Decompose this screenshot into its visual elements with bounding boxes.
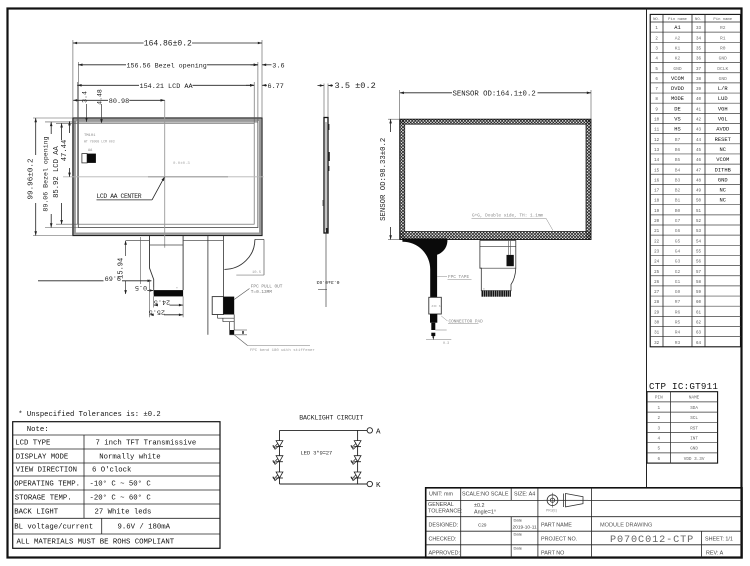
- svg-text:3.5 ±0.2: 3.5 ±0.2: [335, 81, 376, 91]
- svg-text:30: 30: [654, 322, 660, 326]
- svg-text:27: 27: [654, 291, 660, 295]
- svg-text:BL voltage/current: BL voltage/current: [14, 524, 93, 532]
- svg-text:36: 36: [696, 58, 702, 62]
- svg-text:B5: B5: [675, 157, 681, 163]
- svg-text:A2: A2: [675, 35, 681, 41]
- svg-text:Pin name: Pin name: [713, 17, 732, 22]
- svg-text:GENERAL: GENERAL: [428, 502, 454, 508]
- svg-text:3.6: 3.6: [272, 62, 284, 70]
- svg-text:12: 12: [654, 139, 660, 143]
- svg-text:1: 1: [658, 406, 661, 411]
- svg-text:B0: B0: [675, 208, 681, 214]
- svg-text:FPC PULL OUT: FPC PULL OUT: [251, 284, 283, 289]
- svg-text:25.5: 25.5: [149, 307, 165, 315]
- svg-text:45: 45: [696, 149, 702, 153]
- svg-text:BACK LIGHT: BACK LIGHT: [14, 509, 58, 517]
- svg-text:13: 13: [654, 149, 660, 153]
- svg-text:MODE: MODE: [671, 96, 684, 102]
- svg-text:17: 17: [654, 190, 660, 194]
- svg-text:32: 32: [654, 342, 660, 346]
- svg-text:Date: Date: [514, 532, 523, 537]
- svg-text:R4: R4: [675, 330, 681, 336]
- svg-text:52: 52: [696, 220, 702, 224]
- svg-text:PRJ(E): PRJ(E): [546, 509, 557, 513]
- svg-text:51: 51: [696, 210, 702, 214]
- svg-text:80.98: 80.98: [109, 98, 129, 106]
- svg-text:154.21 LCD AA: 154.21 LCD AA: [140, 83, 194, 91]
- svg-text:NC: NC: [720, 188, 726, 194]
- svg-text:7 inch TFT Transmissive: 7 inch TFT Transmissive: [96, 440, 197, 448]
- svg-text:G4: G4: [675, 248, 681, 254]
- svg-text:GND: GND: [718, 177, 728, 183]
- svg-text:WT Y8008 LCM 003: WT Y8008 LCM 003: [84, 140, 115, 144]
- svg-text:UNIT: mm: UNIT: mm: [429, 492, 453, 498]
- svg-text:R6: R6: [675, 309, 681, 315]
- svg-text:15: 15: [654, 169, 660, 173]
- svg-text:SENSOR OD:164.1±0.2: SENSOR OD:164.1±0.2: [453, 90, 536, 98]
- svg-text:Pin name: Pin name: [668, 17, 687, 22]
- svg-text:61: 61: [696, 311, 702, 315]
- svg-text:0.5: 0.5: [135, 283, 147, 291]
- svg-text:20: 20: [654, 220, 660, 224]
- svg-text:CHECKED:: CHECKED:: [429, 537, 457, 543]
- svg-text:GND: GND: [690, 447, 698, 452]
- svg-text:* Unspecified Tolerances is: ±: * Unspecified Tolerances is: ±0.2: [18, 411, 160, 419]
- svg-text:GND: GND: [673, 66, 682, 72]
- svg-text:G0: G0: [675, 289, 681, 295]
- svg-text:DESIGNED:: DESIGNED:: [429, 523, 459, 529]
- svg-text:LED 3*9=27: LED 3*9=27: [301, 450, 333, 457]
- svg-text:47.44: 47.44: [61, 140, 69, 162]
- svg-text:BACKLIGHT CIRCUIT: BACKLIGHT CIRCUIT: [299, 415, 363, 422]
- svg-text:50: 50: [696, 200, 702, 204]
- svg-text:35: 35: [696, 47, 702, 51]
- svg-text:46: 46: [696, 159, 702, 163]
- svg-text:28: 28: [654, 301, 660, 305]
- svg-text:49: 49: [696, 190, 702, 194]
- svg-text:OPERATING TEMP.: OPERATING TEMP.: [14, 481, 80, 489]
- svg-text:Note:: Note:: [27, 426, 49, 434]
- svg-text:27 White leds: 27 White leds: [95, 509, 152, 517]
- svg-text:A: A: [376, 429, 381, 437]
- svg-text:2019-10-11: 2019-10-11: [513, 525, 538, 531]
- svg-text:G6: G6: [675, 228, 681, 234]
- svg-text:R1: R1: [720, 35, 726, 41]
- svg-text:18: 18: [654, 200, 660, 204]
- svg-text:38: 38: [696, 78, 702, 82]
- svg-text:LCD TYPE: LCD TYPE: [15, 440, 50, 448]
- svg-text:Angle=1°: Angle=1°: [474, 510, 496, 516]
- svg-text:21: 21: [654, 230, 660, 234]
- svg-text:42: 42: [696, 119, 702, 123]
- svg-text:P070C012-CTP: P070C012-CTP: [610, 535, 694, 546]
- svg-text:47: 47: [696, 169, 702, 173]
- svg-text:RST: RST: [690, 426, 698, 431]
- svg-text:NO.: NO.: [695, 18, 702, 22]
- svg-text:164.86±0.2: 164.86±0.2: [144, 40, 192, 49]
- svg-text:24: 24: [654, 261, 660, 265]
- svg-text:PART NO: PART NO: [541, 550, 564, 556]
- svg-text:NO.: NO.: [653, 18, 660, 22]
- svg-text:SCALE:NO SCALE: SCALE:NO SCALE: [462, 492, 509, 498]
- svg-text:G1: G1: [675, 279, 681, 285]
- svg-text:41: 41: [696, 108, 702, 112]
- svg-text:STORAGE TEMP.: STORAGE TEMP.: [15, 495, 72, 503]
- svg-text:G7: G7: [675, 218, 681, 224]
- svg-text:54: 54: [696, 240, 702, 244]
- svg-text:-20° C ~ 60° C: -20° C ~ 60° C: [90, 494, 152, 503]
- svg-text:24.5: 24.5: [154, 298, 170, 306]
- svg-text:PART NAME: PART NAME: [541, 523, 572, 529]
- svg-text:3: 3: [658, 426, 661, 431]
- svg-text:40: 40: [696, 98, 702, 102]
- svg-text:R3: R3: [675, 340, 681, 346]
- svg-text:4.48: 4.48: [97, 89, 104, 105]
- svg-text:MODULE DRAWING: MODULE DRAWING: [600, 522, 652, 528]
- svg-text:57: 57: [696, 271, 702, 275]
- svg-text:85.92 LCD AA: 85.92 LCD AA: [53, 145, 61, 197]
- svg-text:4: 4: [658, 437, 661, 442]
- svg-text:INT: INT: [690, 437, 698, 442]
- svg-text:K1: K1: [675, 45, 681, 51]
- svg-text:3.4: 3.4: [82, 91, 89, 103]
- svg-text:39: 39: [696, 88, 702, 92]
- svg-text:43: 43: [696, 129, 702, 133]
- svg-text:31: 31: [654, 332, 660, 336]
- svg-text:10.5: 10.5: [252, 271, 262, 275]
- svg-text:22: 22: [654, 240, 660, 244]
- svg-text:K2: K2: [675, 56, 681, 62]
- svg-text:56: 56: [696, 261, 702, 265]
- svg-text:NC: NC: [720, 198, 726, 204]
- svg-text:GND: GND: [719, 56, 728, 62]
- svg-text:LCD AA CENTER: LCD AA CENTER: [97, 193, 142, 200]
- svg-text:11: 11: [654, 129, 660, 133]
- svg-text:L/R: L/R: [718, 86, 728, 92]
- svg-text:B7: B7: [675, 137, 681, 143]
- svg-text:63: 63: [696, 332, 702, 336]
- svg-text:34: 34: [696, 37, 702, 41]
- svg-text:60: 60: [696, 301, 702, 305]
- svg-text:10: 10: [654, 119, 660, 123]
- svg-text:CTP IC:GT911: CTP IC:GT911: [649, 381, 718, 392]
- svg-text:NC: NC: [720, 147, 726, 153]
- svg-text:VCOM: VCOM: [716, 157, 729, 163]
- svg-text:16: 16: [654, 179, 660, 183]
- svg-text:FPC bend 180 with stiffener: FPC bend 180 with stiffener: [250, 348, 315, 353]
- svg-text:T=0.13MM: T=0.13MM: [251, 290, 272, 295]
- svg-text:5: 5: [658, 447, 661, 452]
- svg-text:62: 62: [696, 322, 702, 326]
- svg-text:99.96±0.2: 99.96±0.2: [27, 158, 35, 199]
- svg-text:HS: HS: [674, 127, 680, 133]
- svg-text:0.3±0.03: 0.3±0.03: [316, 279, 339, 285]
- svg-text:VIEW DIRECTION: VIEW DIRECTION: [16, 467, 77, 475]
- svg-text:B6: B6: [675, 147, 681, 153]
- svg-text:6.77: 6.77: [268, 83, 284, 91]
- svg-text:9.69: 9.69: [105, 273, 121, 281]
- svg-text:RESET: RESET: [715, 137, 732, 143]
- svg-text:DITHB: DITHB: [715, 167, 732, 173]
- svg-text:9.6V / 180mA: 9.6V / 180mA: [118, 524, 171, 532]
- svg-text:DCLK: DCLK: [717, 66, 728, 72]
- svg-text:6 O'clock: 6 O'clock: [92, 467, 132, 475]
- svg-text:R5: R5: [675, 320, 681, 326]
- svg-text:23: 23: [654, 250, 660, 254]
- svg-text:29: 29: [654, 311, 660, 315]
- svg-text:Date: Date: [514, 518, 523, 523]
- svg-text:VS: VS: [674, 117, 680, 123]
- svg-text:A1: A1: [674, 25, 680, 31]
- svg-text:19: 19: [654, 210, 660, 214]
- svg-text:58: 58: [696, 281, 702, 285]
- svg-text:SENSOR OD:98.33±0.2: SENSOR OD:98.33±0.2: [380, 138, 388, 221]
- svg-text:C29: C29: [478, 523, 487, 528]
- svg-text:NAME: NAME: [689, 396, 700, 401]
- svg-text:DVDD: DVDD: [671, 86, 684, 92]
- svg-text:53: 53: [696, 230, 702, 234]
- svg-text:GND: GND: [719, 76, 728, 82]
- svg-text:G+G, Double side, TH: 1.1mm: G+G, Double side, TH: 1.1mm: [472, 214, 544, 219]
- svg-text:0.3: 0.3: [443, 342, 449, 346]
- svg-text:44: 44: [696, 139, 702, 143]
- svg-text:G3: G3: [675, 259, 681, 265]
- svg-text:REV: A: REV: A: [706, 550, 724, 556]
- svg-text:33: 33: [696, 27, 702, 31]
- svg-text:VGL: VGL: [718, 117, 728, 123]
- svg-text:FPC TAPE: FPC TAPE: [448, 275, 469, 280]
- svg-text:SHEET: 1/1: SHEET: 1/1: [705, 537, 733, 543]
- svg-text:PIN: PIN: [655, 396, 663, 401]
- svg-text:SIZE: A4: SIZE: A4: [514, 492, 535, 498]
- svg-text:156.56 Bezel opening: 156.56 Bezel opening: [127, 62, 207, 70]
- svg-text:G2: G2: [675, 269, 681, 275]
- svg-text:R7: R7: [675, 299, 681, 305]
- svg-text:DE: DE: [674, 106, 680, 112]
- svg-text:SCL: SCL: [690, 416, 698, 421]
- svg-text:LUD: LUD: [718, 96, 728, 102]
- svg-text:0.0±0.3: 0.0±0.3: [173, 162, 190, 166]
- svg-text:48: 48: [696, 179, 702, 183]
- svg-text:APPROVED:: APPROVED:: [429, 550, 460, 556]
- svg-text:R2: R2: [720, 25, 726, 31]
- svg-text:G5: G5: [675, 238, 681, 244]
- svg-text:ZIF 6: ZIF 6: [432, 305, 441, 308]
- svg-text:B3: B3: [675, 177, 681, 183]
- svg-text:VCOM: VCOM: [671, 76, 684, 82]
- svg-text:VDD 3.3V: VDD 3.3V: [684, 457, 705, 462]
- svg-text:±0.2: ±0.2: [474, 503, 484, 509]
- svg-text:59: 59: [696, 291, 702, 295]
- svg-text:Date: Date: [514, 545, 523, 550]
- svg-text:VGH: VGH: [718, 106, 728, 112]
- svg-text:SDA: SDA: [690, 406, 698, 411]
- svg-text:TOLERANCE:: TOLERANCE:: [428, 509, 462, 515]
- svg-text:14: 14: [654, 159, 660, 163]
- svg-text:ALL MATERIALS MUST BE ROHS COM: ALL MATERIALS MUST BE ROHS COMPLIANT: [17, 539, 175, 547]
- svg-text:R0: R0: [720, 45, 726, 51]
- svg-text:89.06 Bezel opening: 89.06 Bezel opening: [43, 136, 50, 211]
- svg-text:B1: B1: [675, 198, 681, 204]
- svg-text:64: 64: [696, 342, 702, 346]
- svg-text:37: 37: [696, 68, 702, 72]
- svg-text:-10° C ~ 50° C: -10° C ~ 50° C: [90, 480, 152, 489]
- svg-text:6: 6: [658, 457, 661, 462]
- svg-text:Normally white: Normally white: [99, 454, 160, 462]
- svg-text:26: 26: [654, 281, 660, 285]
- svg-text:25: 25: [654, 271, 660, 275]
- svg-text:∞: ∞: [176, 287, 178, 290]
- svg-text:2: 2: [658, 416, 661, 421]
- svg-text:TM101: TM101: [84, 134, 96, 138]
- svg-text:55: 55: [696, 250, 702, 254]
- svg-text:B2: B2: [675, 188, 681, 194]
- svg-text:B4: B4: [675, 167, 681, 173]
- svg-text:AVDD: AVDD: [716, 127, 729, 133]
- svg-text:DISPLAY MODE: DISPLAY MODE: [16, 454, 69, 462]
- svg-text:K: K: [376, 482, 381, 490]
- svg-text:PROJECT NO.: PROJECT NO.: [541, 537, 577, 543]
